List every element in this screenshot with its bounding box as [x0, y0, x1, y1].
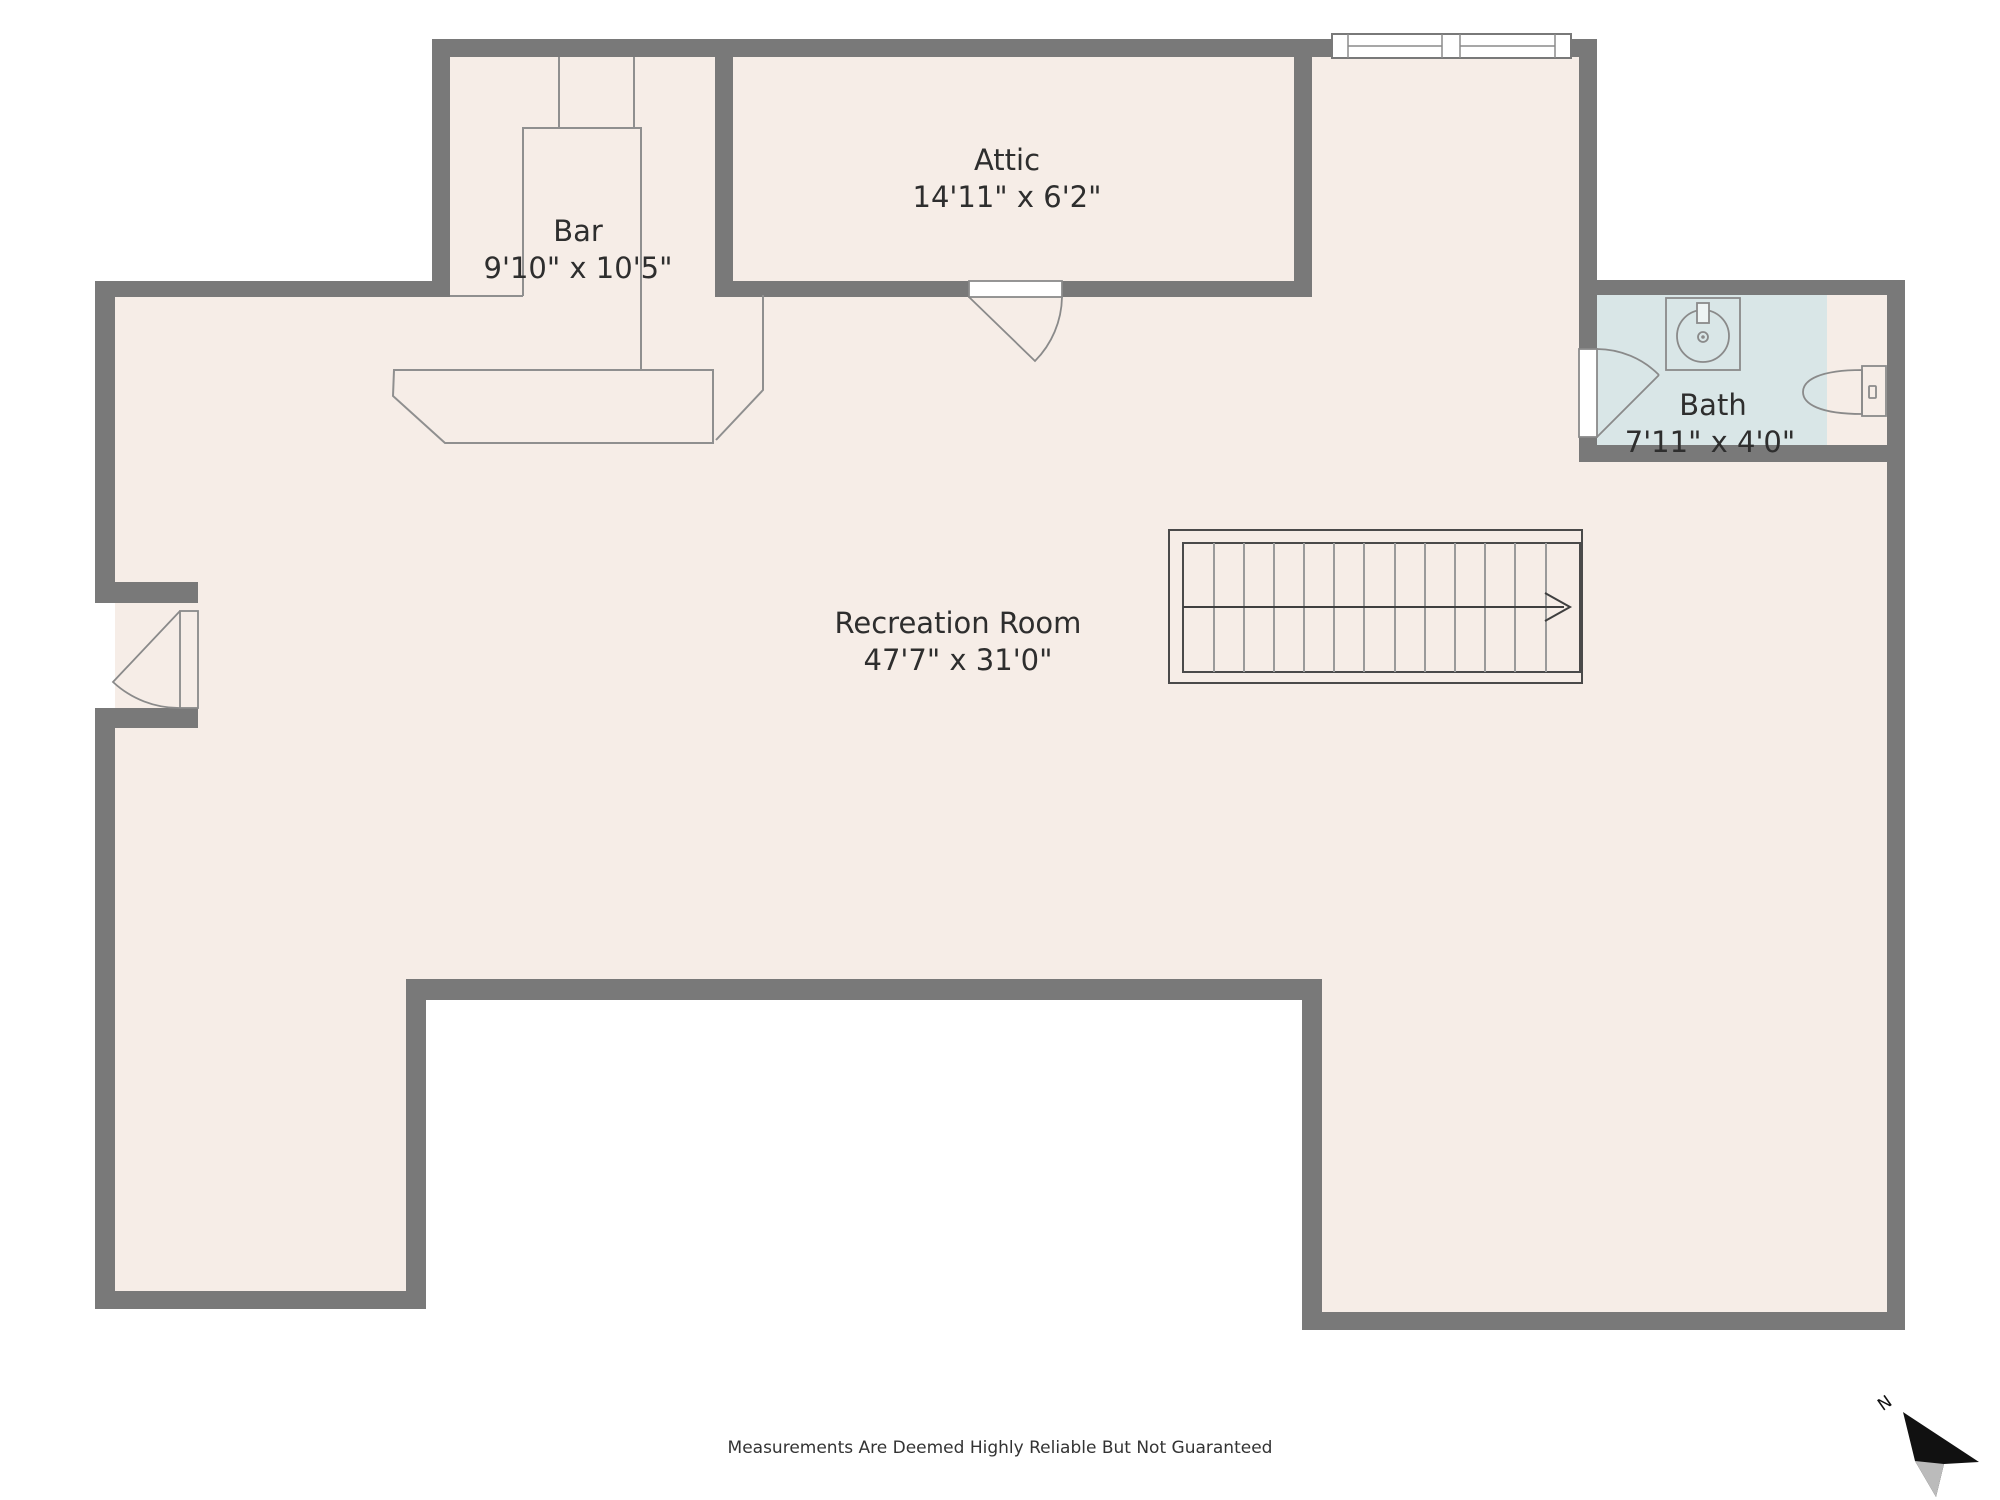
wall-bottom-left — [95, 1291, 426, 1309]
attic-label: Attic — [974, 143, 1040, 177]
wall-left-a — [95, 281, 115, 582]
compass-north-label: N — [1874, 1392, 1896, 1416]
wall-entry-jamb-bottom — [95, 708, 198, 728]
window-icon — [1332, 34, 1571, 58]
recreation-label: Recreation Room — [835, 606, 1082, 640]
wall-upper-left-horizontal — [95, 281, 450, 297]
disclaimer-text: Measurements Are Deemed Highly Reliable … — [728, 1438, 1273, 1458]
wall-notch-right — [1302, 1000, 1322, 1312]
bath-label: Bath — [1679, 388, 1746, 422]
bar-dims: 9'10" x 10'5" — [484, 251, 673, 285]
floor-plan: Bar 9'10" x 10'5" Attic 14'11" x 6'2" Re… — [0, 0, 2000, 1500]
floor-plan-svg: Bar 9'10" x 10'5" Attic 14'11" x 6'2" Re… — [0, 0, 2000, 1500]
wall-attic-right — [1294, 39, 1312, 297]
bath-dims: 7'11" x 4'0" — [1625, 425, 1795, 459]
wall-bar-left — [432, 39, 450, 281]
floors — [115, 57, 1887, 1312]
wall-bath-top — [1579, 280, 1905, 295]
wall-notch-left — [406, 1000, 426, 1291]
bar-label: Bar — [553, 214, 603, 248]
wall-bottom-right — [1302, 1312, 1905, 1330]
room-attic-floor — [733, 57, 1294, 297]
recreation-dims: 47'7" x 31'0" — [864, 643, 1053, 677]
wall-entry-jamb-top — [95, 582, 198, 603]
entry-door-leaf — [180, 611, 198, 708]
wall-notch-top — [406, 979, 1322, 1000]
bath-door-leaf — [1579, 349, 1597, 437]
wall-left-b — [95, 728, 115, 1309]
north-arrow-icon: N — [1874, 1392, 1979, 1497]
attic-dims: 14'11" x 6'2" — [913, 180, 1102, 214]
wall-right-upper-a — [1579, 39, 1597, 349]
wall-bar-attic-divider — [715, 39, 733, 297]
wall-right-outer — [1887, 280, 1905, 1330]
attic-door-leaf — [969, 281, 1062, 297]
